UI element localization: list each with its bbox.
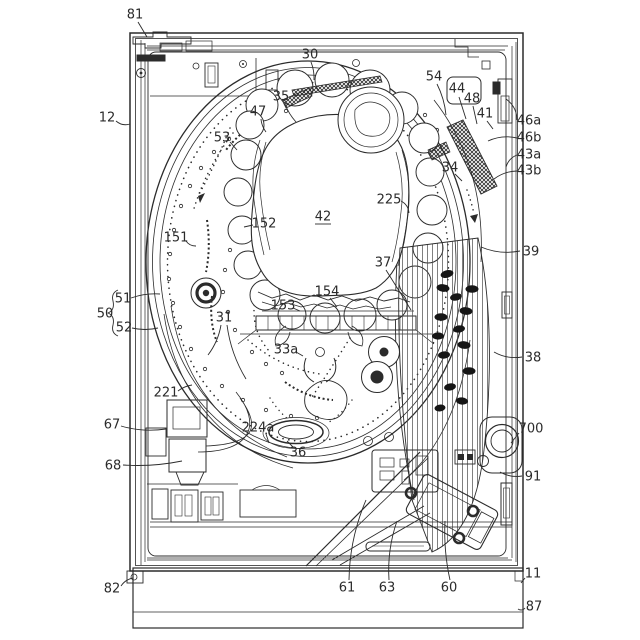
ref-label-47: 47 [250, 105, 267, 120]
ref-label-42: 42 [315, 210, 332, 225]
leader-line-46b [488, 137, 517, 141]
leader-line-87 [518, 608, 525, 610]
leader-line-30 [311, 62, 314, 80]
ref-label-51: 51 [115, 292, 132, 307]
ref-label-91: 91 [525, 470, 542, 485]
ref-label-224a: 224a [242, 421, 275, 436]
ref-label-34: 34 [442, 161, 459, 176]
ref-label-46b: 46b [517, 131, 542, 146]
ref-label-154: 154 [315, 285, 340, 300]
lamp-strip-34 [447, 120, 497, 194]
ref-label-33a: 33a [274, 343, 299, 358]
ref-label-82: 82 [104, 582, 121, 597]
ref-label-67: 67 [104, 418, 121, 433]
ref-label-38: 38 [525, 351, 542, 366]
tulip-pocket [304, 348, 336, 383]
bottom-board [127, 560, 523, 628]
ref-label-63: 63 [379, 581, 396, 596]
ref-label-53: 53 [214, 131, 231, 146]
ref-label-46a: 46a [517, 114, 542, 129]
ref-label-151: 151 [164, 231, 189, 246]
ref-label-39: 39 [523, 245, 540, 260]
start-pockets [362, 337, 400, 393]
ref-label-37: 37 [375, 256, 392, 271]
ref-label-87: 87 [526, 600, 543, 615]
ref-label-30: 30 [302, 48, 319, 63]
ref-label-52: 52 [116, 321, 133, 336]
ref-label-61: 61 [339, 581, 356, 596]
ref-label-50: 50 [97, 307, 114, 322]
leader-line-46a [506, 99, 517, 120]
ref-label-12: 12 [99, 111, 116, 126]
patent-figure: 8112303547535444484146a46b43a43b34225421… [0, 0, 640, 640]
ref-label-35: 35 [273, 90, 290, 105]
leader-line-81 [138, 22, 147, 37]
patent-drawing-canvas: 8112303547535444484146a46b43a43b34225421… [0, 0, 640, 640]
leader-line-43b [494, 171, 517, 179]
ref-label-225: 225 [377, 193, 402, 208]
leader-line-68 [123, 461, 182, 465]
leader-line-31-1 [227, 325, 246, 379]
ref-label-31: 31 [216, 311, 233, 326]
ref-label-54: 54 [426, 70, 443, 85]
leader-line-39 [481, 247, 520, 252]
ref-label-221: 221 [154, 386, 179, 401]
windmill-bell [191, 278, 221, 308]
ref-label-11: 11 [525, 567, 542, 582]
ref-label-152: 152 [252, 217, 277, 232]
ref-label-153: 153 [271, 299, 296, 314]
leader-line-41 [487, 121, 493, 129]
leader-line-12 [116, 121, 130, 125]
ref-label-41: 41 [477, 107, 494, 122]
ref-label-700: 700 [519, 422, 544, 437]
ref-label-43b: 43b [517, 164, 542, 179]
part-91 [478, 456, 513, 526]
lower-ornament-figure [305, 380, 347, 419]
leader-line-43a [506, 155, 517, 167]
ref-label-81: 81 [127, 8, 144, 23]
leader-line-31 [208, 325, 221, 355]
ref-label-68: 68 [105, 459, 122, 474]
ref-label-48: 48 [464, 92, 481, 107]
round-sub-window [338, 87, 404, 153]
ref-label-60: 60 [441, 581, 458, 596]
ref-label-43a: 43a [517, 148, 542, 163]
ref-label-36: 36 [290, 446, 307, 461]
